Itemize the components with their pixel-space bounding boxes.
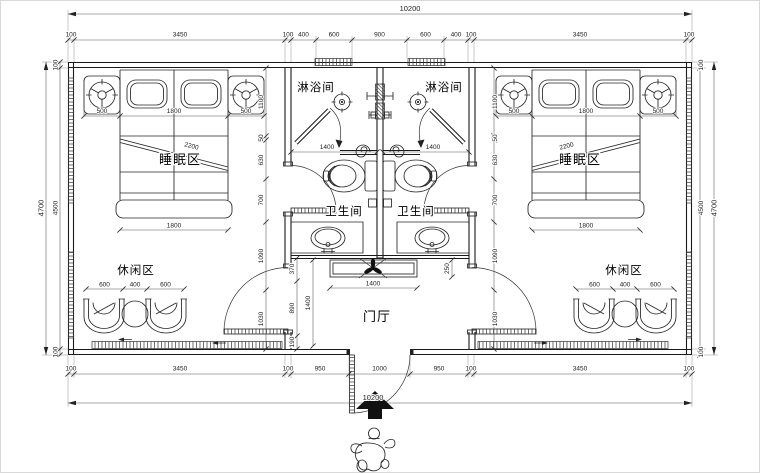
dim-label: 500	[653, 108, 664, 115]
dim-label: 900	[374, 32, 385, 39]
label-sleep-left: 睡眠区	[159, 152, 201, 167]
dim-label: 4700	[37, 200, 46, 217]
dim-label: 400	[130, 282, 141, 289]
dim-label: 1030	[258, 311, 265, 326]
dim-label: 1800	[579, 108, 594, 115]
dim-label: 100	[698, 59, 705, 70]
dim-label: 100	[698, 346, 705, 357]
dim-label: 400	[451, 32, 462, 39]
dim-label: 1400	[305, 295, 312, 310]
dim-label: 600	[329, 32, 340, 39]
dim-label: 600	[589, 282, 600, 289]
dim-label: 3450	[573, 32, 588, 39]
entry-jamb-left	[347, 349, 351, 355]
dim-label: 1090	[258, 248, 265, 263]
shower-pier	[376, 84, 385, 100]
label-leisure-right: 休闲区	[605, 263, 643, 277]
dim-label: 1800	[579, 223, 594, 230]
dim-label: 100	[53, 59, 60, 70]
dim-label: 600	[99, 282, 110, 289]
label-hall: 门厅	[363, 309, 391, 324]
dim-label: 1090	[492, 248, 499, 263]
label-toilet-left: 卫生间	[325, 204, 363, 218]
floor-plan-drawing: 10200 10200 100 3450 100 400 600 900 600…	[0, 0, 760, 473]
dim-label: 4500	[698, 200, 705, 215]
dim-label: 100	[283, 32, 294, 39]
dim-label: 600	[160, 282, 171, 289]
dim-label: 630	[258, 154, 265, 165]
floor-plan-canvas: 10200 10200 100 3450 100 400 600 900 600…	[0, 0, 760, 473]
entry-jamb-right	[410, 349, 414, 355]
dim-label: 100	[283, 366, 294, 373]
dim-label: 100	[684, 366, 695, 373]
dim-label: 950	[315, 366, 326, 373]
label-sleep-right: 睡眠区	[559, 152, 601, 167]
label-leisure-left: 休闲区	[117, 263, 155, 277]
dim-label: 500	[97, 108, 108, 115]
dim-label: 1030	[492, 311, 499, 326]
dim-label: 1100	[492, 95, 499, 109]
dim-label: 250	[444, 263, 451, 274]
dim-label: 10200	[400, 4, 421, 13]
dim-label: 1800	[167, 223, 182, 230]
dim-label: 4500	[53, 200, 60, 215]
dim-label: 100	[53, 346, 60, 357]
dim-label: 1400	[426, 144, 441, 151]
dim-label: 1100	[258, 95, 265, 109]
dim-label: 100	[66, 32, 77, 39]
shower-pier	[376, 103, 385, 119]
dim-label: 1000	[372, 366, 387, 373]
dim-label: 1400	[320, 144, 335, 151]
dim-label: 1800	[167, 108, 182, 115]
dim-label: 400	[620, 282, 631, 289]
dim-label: 950	[434, 366, 445, 373]
dim-label: 3450	[173, 32, 188, 39]
dim-label: 50	[258, 134, 265, 142]
entry-door-leaf	[350, 355, 355, 413]
dim-label: 50	[492, 134, 499, 142]
dim-label: 500	[509, 108, 520, 115]
dim-label: 400	[298, 32, 309, 39]
dim-label: 630	[492, 154, 499, 165]
dim-label: 100	[466, 32, 477, 39]
dim-label: 500	[241, 108, 252, 115]
dim-label: 190	[289, 336, 296, 347]
label-shower-right: 淋浴间	[425, 81, 463, 94]
dim-label: 100	[66, 366, 77, 373]
dim-label: 370	[289, 263, 296, 274]
dim-label: 890	[289, 302, 296, 313]
label-shower-left: 淋浴间	[297, 81, 335, 94]
dim-label: 10200	[363, 393, 384, 402]
dim-label: 3450	[173, 366, 188, 373]
dim-label: 700	[492, 194, 499, 205]
label-toilet-right: 卫生间	[397, 204, 435, 218]
dim-label: 1400	[366, 281, 381, 288]
dim-label: 100	[466, 366, 477, 373]
dim-label: 600	[650, 282, 661, 289]
dim-label: 3450	[573, 366, 588, 373]
dim-label: 4700	[710, 200, 719, 217]
dim-label: 700	[258, 194, 265, 205]
dim-label: 600	[420, 32, 431, 39]
dim-label: 100	[684, 32, 695, 39]
